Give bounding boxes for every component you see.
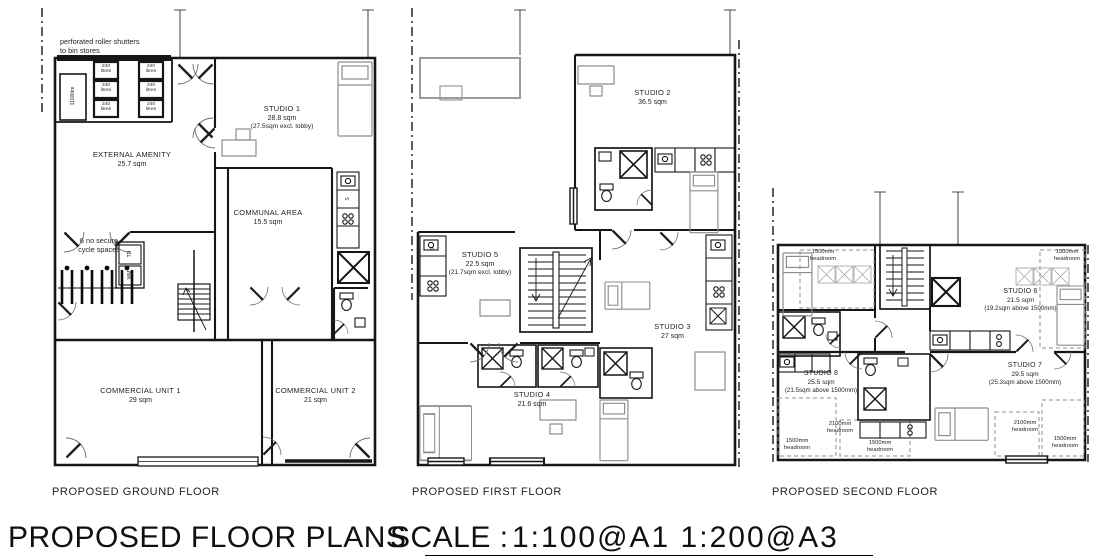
appliance-text: WM [127,265,133,285]
room-name: COMMUNAL AREA [213,208,323,217]
bathroom-pods [478,345,598,387]
caption-ground-floor: PROPOSED GROUND FLOOR [52,486,220,498]
headroom-text: 1500mm headroom [773,438,821,452]
appliance-text: TD [127,244,133,264]
studio3-kitchen [706,235,732,330]
studio3-bathroom-pod [600,348,652,398]
room-name: STUDIO 1 [222,104,342,113]
studio2-bathroom-pod [595,148,652,210]
caption-text: PROPOSED SECOND FLOOR [772,486,938,498]
sheet-title: PROPOSED FLOOR PLANS [8,521,406,555]
room-area: 22.5 sqm [420,261,540,268]
bin-label-text: 240 litres [94,102,118,113]
headroom-text: 1500mm headroom [856,440,904,454]
room-label-studio7: STUDIO 7 29.5 sqm (25.3sqm above 1500mm) [965,362,1085,386]
caption-text: PROPOSED FIRST FLOOR [412,486,562,498]
bin-label-text: 240 litres [139,102,163,113]
bin-label-text: 1100litre [70,73,76,119]
room-label-studio2: STUDIO 2 36.5 sqm [605,88,700,106]
room-area: 21 sqm [253,397,378,404]
drawing-sheet: perforated roller shutters to bin stores… [0,0,1096,560]
room-note: (21.7sqm excl. lobby) [420,269,540,276]
studio6-kitchen [930,331,1010,350]
caption-text: PROPOSED GROUND FLOOR [52,486,220,498]
lift-icon [338,252,369,283]
room-label-communal: COMMUNAL AREA 15.5 sqm [213,208,323,226]
bin-label-text: 240 litres [139,64,163,75]
floor-plans-linework [0,0,1096,560]
windows [1006,456,1047,463]
room-name: STUDIO 6 [963,288,1078,295]
headroom-label-1500: 1500mm headroom [1040,436,1090,450]
bin-label-text: 240 litres [94,64,118,75]
caption-first-floor: PROPOSED FIRST FLOOR [412,486,562,498]
scale-underline [425,555,873,556]
bin-1100-label: 1100litre [70,73,76,119]
appliance-label-td: TD [127,244,133,264]
room-label-commercial2: COMMERCIAL UNIT 2 21 sqm [253,386,378,404]
headroom-label-1500: 1500mm headroom [1044,249,1090,263]
room-area: 36.5 sqm [605,99,700,106]
headroom-text: 1500mm headroom [1044,249,1090,263]
room-area: 25.5 sqm [762,379,880,386]
room-name: STUDIO 2 [605,88,700,97]
note-text: perforated roller shutters to bin stores [60,37,220,55]
room-label-studio5: STUDIO 5 22.5 sqm (21.7sqm excl. lobby) [420,250,540,276]
room-note: (27.5sqm excl. lobby) [222,123,342,130]
room-label-commercial1: COMMERCIAL UNIT 1 29 sqm [78,386,203,404]
headroom-label-1500: 1500mm headroom [856,440,904,454]
scale-value: 1:100@A1 1:200@A3 [512,521,839,555]
room-note: (21.5sqm above 1500mm) [762,387,880,394]
bin-240-label: 240 litres [139,64,163,75]
room-label-studio3: STUDIO 3 27 sqm [625,322,720,340]
room-label-external-amenity: EXTERNAL AMENITY 25.7 sqm [72,150,192,168]
room-label-studio4: STUDIO 4 21.6 sqm [487,390,577,408]
site-boundary-line [42,8,374,115]
bathroom-pod-left [778,312,840,356]
bin-240-label: 240 litres [94,83,118,94]
room-area: 21.5 sqm [963,297,1078,304]
title-text: PROPOSED FLOOR PLANS [8,521,406,554]
kitchen-units [337,172,359,248]
bin-240-label: 240 litres [94,64,118,75]
room-name: EXTERNAL AMENITY [72,150,192,159]
room-label-studio1: STUDIO 1 28.8 sqm (27.5sqm excl. lobby) [222,104,342,130]
room-area: 28.8 sqm [222,115,342,122]
bin-240-label: 240 litres [139,83,163,94]
caption-second-floor: PROPOSED SECOND FLOOR [772,486,938,498]
studio2-kitchen [655,148,735,172]
room-area: 25.7 sqm [72,161,192,168]
room-label-studio8: STUDIO 8 25.5 sqm (21.5sqm above 1500mm) [762,370,880,394]
room-name: STUDIO 4 [487,390,577,399]
stairs-icon [178,250,210,332]
scale-value-text: 1:100@A1 1:200@A3 [512,521,839,554]
room-note: (25.3sqm above 1500mm) [965,379,1085,386]
room-name: STUDIO 5 [420,250,540,259]
scale-label: SCALE : [390,521,509,555]
stairs-icon [880,245,930,309]
headroom-label-2100: 2100mm headroom [816,421,864,435]
room-area: 15.5 sqm [213,219,323,226]
appliance-text: S [345,192,351,206]
room-area: 21.6 sqm [487,401,577,408]
headroom-label-1500: 1500mm headroom [798,249,848,263]
room-name: STUDIO 8 [762,370,880,377]
appliance-text: S [430,242,436,256]
bin-store-note: perforated roller shutters to bin stores [60,37,220,55]
headroom-text: 2100mm headroom [816,421,864,435]
rooflights [818,266,1069,285]
bin-240-label: 240 litres [94,102,118,113]
room-area: 29.5 sqm [965,371,1085,378]
headroom-label-2100: 2100mm headroom [1000,420,1050,434]
headroom-text: 2100mm headroom [1000,420,1050,434]
bin-label-text: 240 litres [139,83,163,94]
room-area: 29 sqm [78,397,203,404]
wc-pod [334,293,368,340]
bin-240-label: 240 litres [139,102,163,113]
room-name: COMMERCIAL UNIT 2 [253,386,378,395]
scale-label-text: SCALE : [390,521,509,554]
headroom-text: 1500mm headroom [1040,436,1090,450]
room-note: (19.2sqm above 1500mm) [963,305,1078,312]
roof-below [420,58,520,100]
room-name: COMMERCIAL UNIT 1 [78,386,203,395]
appliance-label-sink: S [345,192,351,206]
appliance-label-wm: WM [127,265,133,285]
lift-icon [932,278,960,306]
headroom-label-1500: 1500mm headroom [773,438,821,452]
room-name: STUDIO 7 [965,362,1085,369]
room-label-studio6: STUDIO 6 21.5 sqm (19.2sqm above 1500mm) [963,288,1078,312]
room-name: STUDIO 3 [625,322,720,331]
appliance-label-sink: S [430,242,436,256]
headroom-text: 1500mm headroom [798,249,848,263]
bin-label-text: 240 litres [94,83,118,94]
studio7-kitchen [860,422,926,438]
room-area: 27 sqm [625,333,720,340]
